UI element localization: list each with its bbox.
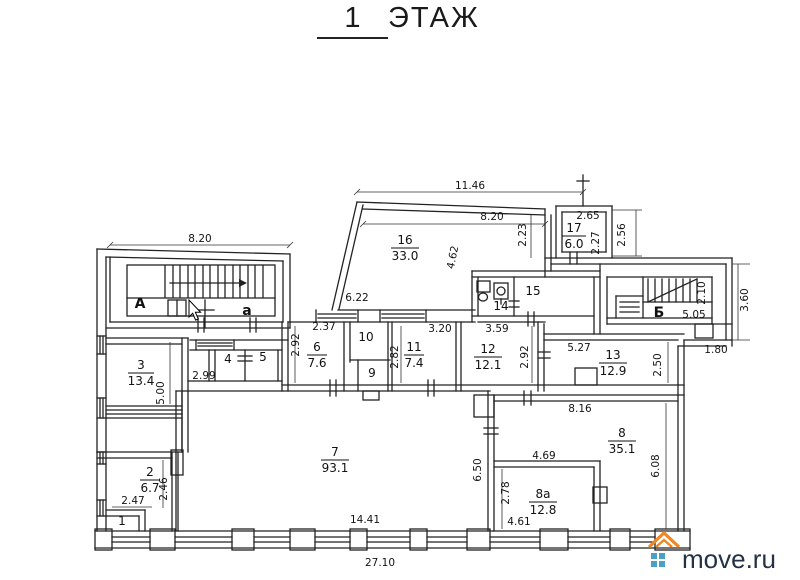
dim-total-bottom: 27.10	[365, 557, 395, 569]
room-16-number: 16	[397, 233, 412, 247]
dim-r6-top: 2.37	[312, 321, 335, 333]
room-2-area: 6.7	[140, 481, 159, 495]
dim-r13-side: 2.50	[652, 353, 664, 376]
room-3-area: 13.4	[128, 374, 155, 388]
dim-r8a-top: 4.69	[532, 450, 555, 462]
dim-r13-top: 5.27	[567, 342, 590, 354]
dim-r17-height: 2.27	[590, 231, 602, 254]
room-7-area: 93.1	[322, 461, 349, 475]
toilet-icon	[477, 281, 490, 292]
room-12-number: 12	[480, 342, 495, 356]
room-14-number: 14	[493, 299, 508, 313]
toilet-bowl-icon	[479, 293, 488, 301]
dim-r6-side: 2.92	[290, 333, 302, 356]
dim-stair-b-width: 2.10	[696, 281, 708, 304]
move-ru-logo-svg: move.ru	[640, 524, 800, 580]
logo-text: move.ru	[682, 544, 776, 574]
stairwell-a-walls	[97, 249, 290, 332]
move-ru-logo[interactable]: move.ru	[640, 524, 800, 580]
dim-r16-niche: 2.23	[517, 223, 529, 246]
mouse-cursor-icon	[189, 300, 201, 320]
room-4-number: 4	[224, 352, 232, 366]
room-12-area: 12.1	[475, 358, 502, 372]
dim-entry-top: 8.20	[188, 233, 211, 245]
dim-r2-bottom: 2.47	[121, 495, 144, 507]
logo-house-icon	[649, 533, 679, 567]
room-13-area: 12.9	[600, 364, 627, 378]
room-6-number: 6	[313, 340, 321, 354]
dim-r8-top: 8.16	[568, 403, 592, 415]
stair-a-small-label: а	[242, 303, 251, 319]
dim-r12-top: 3.59	[485, 323, 508, 335]
room-2-number: 2	[146, 465, 154, 479]
room-16-area: 33.0	[392, 249, 419, 263]
room-8a-number: 8а	[536, 487, 551, 501]
room-3-number: 3	[137, 358, 145, 372]
dim-r7-bottom: 14.41	[350, 514, 380, 526]
stair-b-label: Б	[654, 305, 665, 321]
stairwell-b-walls	[600, 264, 732, 338]
bottom-wall	[95, 529, 690, 550]
dim-r2-side: 2.46	[158, 477, 170, 501]
room-16-walls	[288, 202, 551, 322]
dim-below-stair-b: 1.80	[704, 344, 727, 356]
room-7-number: 7	[331, 445, 339, 459]
dim-r11-side: 2.82	[389, 345, 401, 368]
washbasin-icon	[494, 283, 508, 299]
dim-r8a-bottom: 4.61	[507, 516, 530, 528]
floor-plan-drawing: 8.20 11.46 8.20 6.22 2.65 5.05 1.80 2.37…	[0, 0, 800, 580]
room-1-number: 1	[118, 514, 126, 528]
room-17-area: 6.0	[564, 237, 583, 251]
dim-hall-width: 2.99	[192, 370, 215, 382]
room-11-number: 11	[406, 340, 421, 354]
dim-r8-side: 6.08	[650, 454, 662, 477]
dim-r12-side: 2.92	[519, 345, 531, 368]
dim-r16-top: 11.46	[455, 180, 485, 192]
room-6-area: 7.6	[307, 356, 326, 370]
dim-r16-width: 8.20	[480, 211, 503, 223]
room-10-number: 10	[358, 330, 373, 344]
room-9-number: 9	[368, 366, 376, 380]
stair-a-label: А	[135, 296, 146, 312]
outer-left-wall	[97, 249, 106, 531]
dim-r17-side: 2.56	[616, 223, 628, 247]
dim-r8a-side: 2.78	[500, 481, 512, 504]
dim-r3-side: 5.00	[155, 381, 167, 404]
dim-r16-bottom: 6.22	[345, 292, 368, 304]
room-5-number: 5	[259, 350, 267, 364]
dim-stair-b-len: 5.05	[682, 309, 705, 321]
room-8a-area: 12.8	[530, 503, 557, 517]
room-17-number: 17	[566, 221, 581, 235]
room-8-area: 35.1	[609, 442, 636, 456]
dim-r7-side: 6.50	[472, 458, 484, 481]
room-8-number: 8	[618, 426, 626, 440]
room-13-number: 13	[605, 348, 620, 362]
room-11-area: 7.4	[404, 356, 423, 370]
dimension-labels-horizontal: 8.20 11.46 8.20 6.22 2.65 5.05 1.80 2.37…	[121, 180, 727, 569]
dim-r16-diag: 4.62	[445, 245, 462, 270]
room-15-number: 15	[525, 284, 540, 298]
dim-right-side: 3.60	[739, 288, 751, 311]
dim-r11-top: 3.20	[428, 323, 451, 335]
